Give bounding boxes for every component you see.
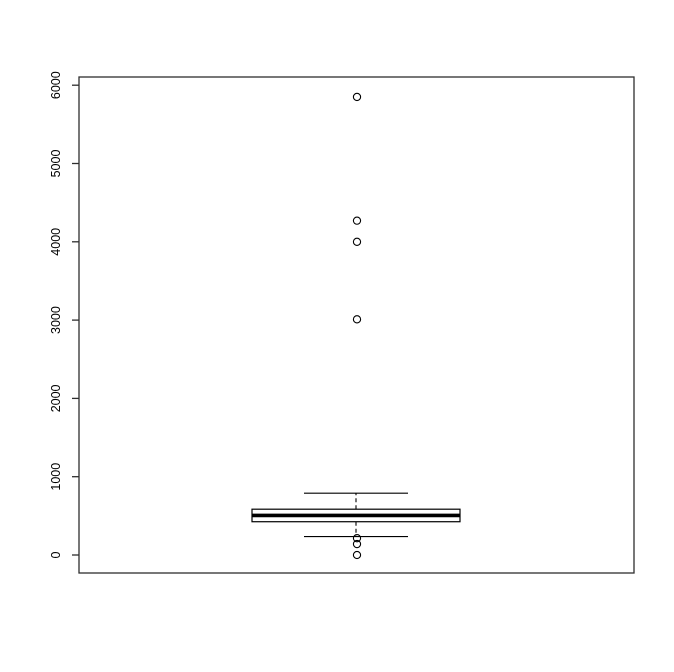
y-axis-tick-label: 4000 bbox=[49, 228, 63, 256]
y-axis-tick-label: 5000 bbox=[49, 150, 63, 178]
boxplot-layer bbox=[252, 93, 460, 558]
outlier-point bbox=[353, 93, 360, 100]
boxplot-chart: 0100020003000400050006000 bbox=[0, 0, 674, 672]
y-axis-tick-label: 2000 bbox=[49, 384, 63, 412]
y-axis-tick-label: 0 bbox=[49, 551, 63, 558]
y-axis-tick-label: 1000 bbox=[49, 463, 63, 491]
outlier-point bbox=[353, 238, 360, 245]
boxplot-figure: 0100020003000400050006000 bbox=[0, 0, 674, 672]
outlier-point bbox=[353, 217, 360, 224]
y-axis-tick-label: 3000 bbox=[49, 306, 63, 334]
outlier-point bbox=[353, 316, 360, 323]
y-axis-layer: 0100020003000400050006000 bbox=[49, 71, 79, 558]
outlier-point bbox=[353, 551, 360, 558]
y-axis-tick-label: 6000 bbox=[49, 71, 63, 99]
